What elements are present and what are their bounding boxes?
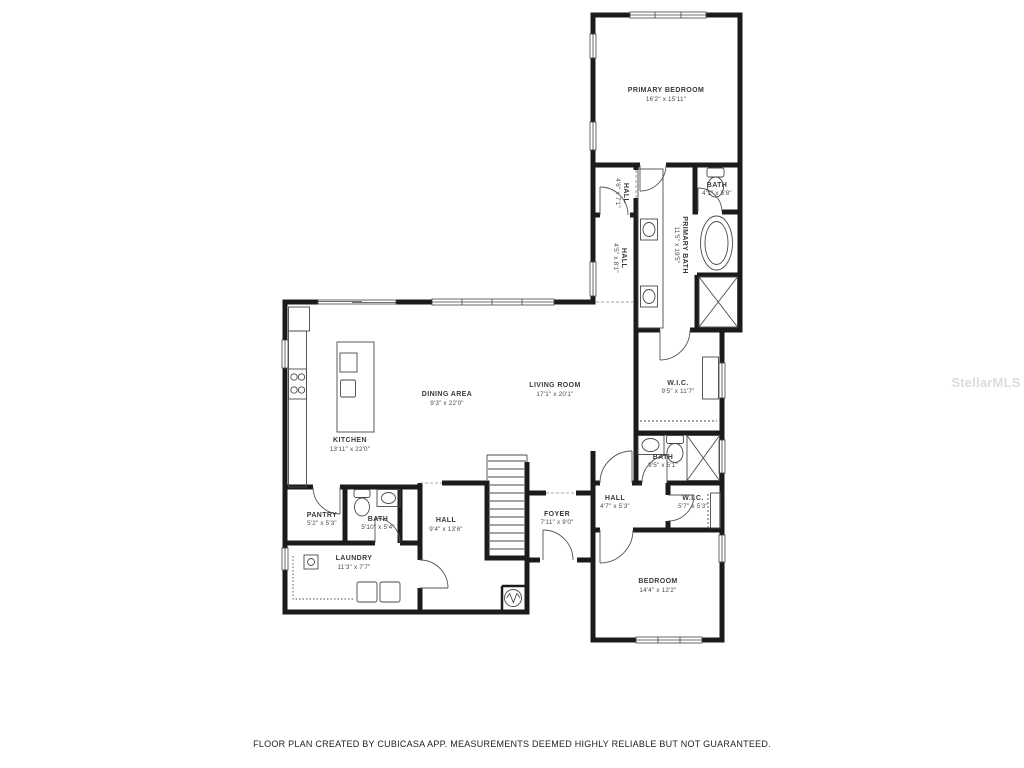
svg-text:9'3" x 22'0": 9'3" x 22'0" (430, 400, 463, 407)
window (282, 548, 288, 570)
floor-plan-canvas: PRIMARY BEDROOM 16'2" x 15'11" BATH 4'1"… (0, 0, 1024, 768)
room-label-foyer: FOYER 7'11" x 9'0" (541, 511, 574, 526)
svg-text:BATH: BATH (707, 182, 728, 189)
door-arc (600, 530, 633, 563)
room-label-primary-bedroom: PRIMARY BEDROOM 16'2" x 15'11" (628, 87, 704, 103)
sink-icon (638, 436, 664, 455)
wardrobe (703, 357, 719, 399)
vanity-counter (638, 169, 663, 328)
svg-text:4'7" x 5'3": 4'7" x 5'3" (600, 503, 630, 510)
svg-text:HALL: HALL (605, 495, 626, 502)
svg-text:FOYER: FOYER (544, 511, 570, 518)
svg-text:11'5" x 19'5": 11'5" x 19'5" (673, 227, 680, 264)
refrigerator (289, 307, 310, 331)
door-arc (420, 560, 448, 588)
room-label-living-room: LIVING ROOM 17'1" x 20'1" (529, 382, 580, 398)
svg-text:DINING AREA: DINING AREA (422, 391, 472, 398)
room-label-hall-main: HALL 9'4" x 13'6" (429, 517, 462, 533)
wardrobe (711, 493, 721, 528)
room-label-pantry: PANTRY 5'2" x 5'3" (307, 512, 337, 527)
svg-text:9'5" x 5'1": 9'5" x 5'1" (648, 462, 678, 469)
hall-bath-fixtures (638, 436, 720, 481)
svg-text:PRIMARY BEDROOM: PRIMARY BEDROOM (628, 87, 704, 94)
room-label-bath-powder: BATH 5'10" x 5'4" (361, 516, 394, 531)
svg-text:11'3" x 7'7": 11'3" x 7'7" (338, 564, 371, 571)
window (719, 363, 725, 398)
room-label-hall-upper: HALL 4'6" x 7'1" (614, 178, 629, 208)
window (590, 122, 596, 150)
dryer-icon (380, 582, 400, 602)
sink-icon (641, 219, 658, 240)
room-label-kitchen: KITCHEN 13'11" x 22'0" (330, 437, 370, 453)
floor-plan-page: PRIMARY BEDROOM 16'2" x 15'11" BATH 4'1"… (0, 0, 1024, 768)
shower-icon (687, 436, 720, 481)
svg-text:9'4" x 13'6": 9'4" x 13'6" (429, 526, 462, 533)
svg-text:17'1" x 20'1": 17'1" x 20'1" (536, 391, 573, 398)
room-label-laundry: LAUNDRY 11'3" x 7'7" (336, 555, 373, 571)
toilet-icon (354, 490, 370, 517)
kitchen-island (337, 342, 374, 432)
svg-text:16'2" x 15'11": 16'2" x 15'11" (646, 96, 686, 103)
svg-text:HALL: HALL (620, 248, 627, 269)
washer-icon (357, 582, 377, 602)
svg-text:BEDROOM: BEDROOM (638, 578, 677, 585)
svg-text:PANTRY: PANTRY (307, 512, 337, 519)
exterior-walls (283, 13, 743, 643)
openings (420, 170, 636, 493)
room-label-primary-bath: PRIMARY BATH 11'5" x 19'5" (673, 216, 688, 274)
svg-text:5'2" x 5'3": 5'2" x 5'3" (307, 520, 337, 527)
room-label-dining-area: DINING AREA 9'3" x 22'0" (422, 391, 472, 407)
svg-text:HALL: HALL (436, 517, 457, 524)
svg-text:LIVING ROOM: LIVING ROOM (529, 382, 580, 389)
kitchen-counter (289, 331, 307, 487)
window (590, 262, 596, 296)
svg-text:W.I.C.: W.I.C. (667, 380, 688, 387)
stairs (487, 455, 527, 549)
svg-text:5'10" x 5'4": 5'10" x 5'4" (361, 524, 394, 531)
svg-text:14'4" x 12'2": 14'4" x 12'2" (639, 587, 676, 594)
bathtub-icon (701, 216, 733, 270)
svg-text:PRIMARY BATH: PRIMARY BATH (681, 216, 688, 274)
powder-bath-fixtures (354, 490, 400, 517)
stellar-mls-watermark: StellarMLS (948, 375, 1024, 390)
svg-text:9'5" x 11'7": 9'5" x 11'7" (662, 388, 695, 395)
laundry-sink-icon (304, 555, 318, 569)
shower-icon (699, 277, 738, 327)
room-label-wic-large: W.I.C. 9'5" x 11'7" (662, 380, 695, 395)
svg-text:13'11" x 22'0": 13'11" x 22'0" (330, 446, 370, 453)
door-arc (543, 530, 573, 560)
svg-text:4'6" x 7'1": 4'6" x 7'1" (614, 178, 621, 208)
cooktop-icon (289, 369, 307, 399)
window (590, 34, 596, 58)
svg-text:HALL: HALL (622, 183, 629, 204)
svg-text:4'1" x 5'8": 4'1" x 5'8" (702, 190, 732, 197)
door-arc (660, 330, 690, 360)
laundry-counter (293, 556, 354, 599)
laundry-fixtures (293, 555, 400, 602)
island-sink-icon (341, 380, 356, 397)
water-heater-icon (505, 590, 522, 607)
window (282, 340, 288, 368)
window (636, 637, 702, 643)
svg-text:7'11" x 9'0": 7'11" x 9'0" (541, 519, 574, 526)
room-label-bedroom: BEDROOM 14'4" x 12'2" (638, 578, 677, 594)
room-label-bath-hall: BATH 9'5" x 5'1" (648, 454, 678, 469)
window (432, 299, 554, 305)
sink-icon (377, 490, 400, 507)
svg-text:W.I.C.: W.I.C. (682, 495, 703, 502)
svg-text:BATH: BATH (368, 516, 389, 523)
door-arc (313, 487, 340, 514)
svg-text:4'5" x 8'1": 4'5" x 8'1" (612, 243, 619, 273)
svg-text:KITCHEN: KITCHEN (333, 437, 367, 444)
sink-icon (641, 286, 658, 307)
door-arc (600, 451, 632, 483)
window (719, 535, 725, 562)
svg-text:LAUNDRY: LAUNDRY (336, 555, 373, 562)
disclaimer-text: FLOOR PLAN CREATED BY CUBICASA APP. MEAS… (0, 739, 1024, 749)
sliding-door (318, 300, 396, 304)
kitchen-fixtures (289, 307, 375, 487)
room-label-hall-small: HALL 4'7" x 5'3" (600, 495, 630, 510)
window (630, 12, 706, 18)
room-label-wic-small: W.I.C. 5'7" x 5'3" (678, 495, 708, 510)
room-label-hall-mid: HALL 4'5" x 8'1" (612, 243, 627, 273)
svg-text:5'7" x 5'3": 5'7" x 5'3" (678, 503, 708, 510)
svg-text:BATH: BATH (653, 454, 674, 461)
room-label-bath-upper: BATH 4'1" x 5'8" (702, 182, 732, 197)
